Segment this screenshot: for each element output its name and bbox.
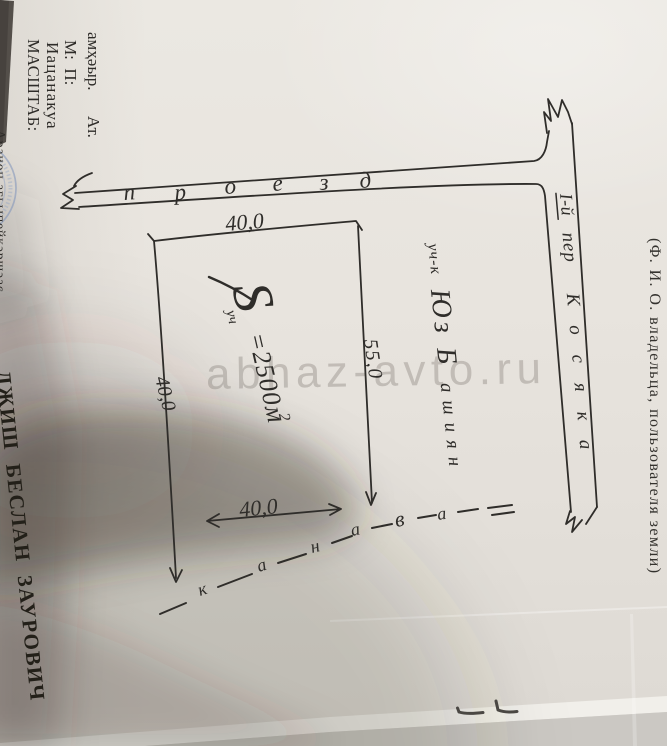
svg-text:к: к <box>195 578 210 600</box>
svg-text:з: з <box>318 169 330 195</box>
svg-text:40,0: 40,0 <box>150 374 180 413</box>
svg-text:Косяка: Косяка <box>562 291 598 470</box>
svg-text:=2500м: =2500м <box>242 330 291 426</box>
svg-text:40,0: 40,0 <box>224 208 265 236</box>
svg-text:д: д <box>359 167 372 193</box>
svg-text:п: п <box>123 179 136 205</box>
svg-text:н: н <box>308 535 322 557</box>
svg-text:уч-к: уч-к <box>424 241 444 276</box>
svg-text:ашиян: ашиян <box>436 382 466 475</box>
svg-text:е: е <box>272 170 284 196</box>
svg-text:пер: пер <box>557 232 581 264</box>
svg-text:а: а <box>254 554 269 576</box>
svg-text:а: а <box>436 503 448 524</box>
svg-text:55,0: 55,0 <box>359 338 386 382</box>
svg-text:40,0: 40,0 <box>238 493 279 522</box>
svg-text:Юз Б: Юз Б <box>424 286 463 369</box>
svg-text:в: в <box>393 506 407 532</box>
svg-text:о: о <box>224 173 237 199</box>
svg-text:І-й: І-й <box>556 192 578 217</box>
